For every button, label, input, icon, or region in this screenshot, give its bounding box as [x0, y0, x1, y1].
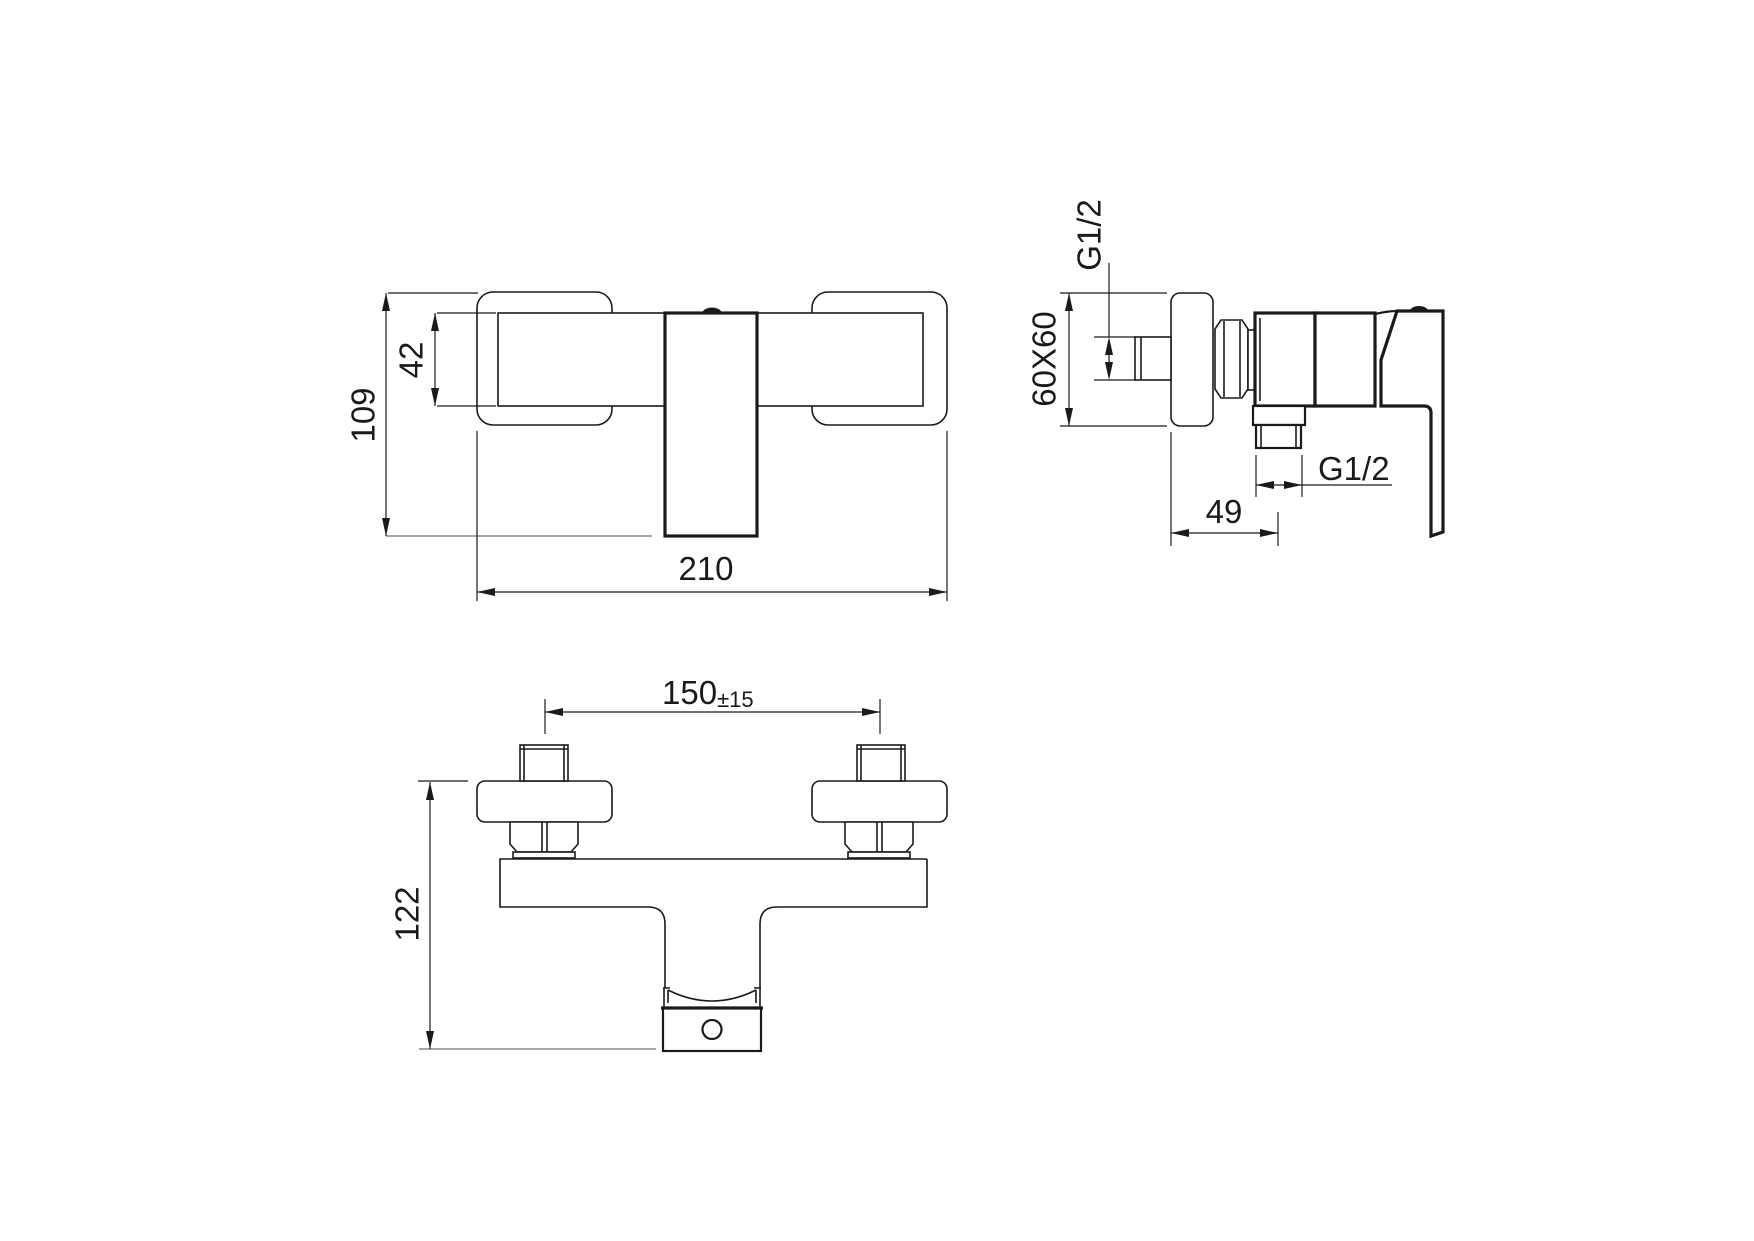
side-view: 60X60 G1/2 49 G1/2: [1026, 199, 1443, 546]
shower-mixer-drawing: 109 42 210: [0, 0, 1754, 1241]
arrowhead: [426, 782, 434, 800]
side-outlet-thread: [1256, 425, 1301, 448]
front-view: 109 42 210: [345, 292, 947, 601]
dim-label-150-value: 150: [662, 674, 717, 711]
bottom-left-nipple: [520, 745, 568, 781]
arrowhead: [477, 588, 495, 596]
grip-concave-arc: [668, 990, 756, 1001]
front-valve-body: [665, 313, 757, 536]
bottom-right-washer: [848, 852, 910, 858]
side-hex-nut: [1215, 320, 1248, 398]
dim-label-210: 210: [678, 550, 733, 587]
bottom-body-outline: [500, 859, 927, 988]
side-handle-lever: [1381, 311, 1443, 536]
arrowhead: [1105, 337, 1113, 355]
handle-neck-curve: [1375, 311, 1397, 314]
bottom-right-nipple: [857, 745, 905, 781]
dim-label-60x60: 60X60: [1026, 311, 1063, 406]
side-wall-flange: [1171, 293, 1213, 426]
arrowhead: [1260, 529, 1278, 537]
side-valve-body-rear: [1315, 313, 1375, 406]
dim-label-42: 42: [393, 342, 430, 379]
bottom-right-hex-nut: [845, 822, 913, 852]
bottom-left-washer: [513, 852, 575, 858]
dim-label-49: 49: [1206, 493, 1243, 530]
dim-label-g12-outlet: G1/2: [1318, 450, 1390, 487]
arrowhead: [431, 313, 439, 331]
arrowhead: [1171, 529, 1189, 537]
arrowhead: [431, 388, 439, 406]
grip-hole: [703, 1020, 722, 1039]
bottom-right-flange: [812, 781, 947, 822]
arrowhead: [862, 708, 880, 716]
bottom-view: 150±15 122: [389, 674, 947, 1051]
arrowhead: [545, 708, 563, 716]
arrowhead: [1065, 408, 1073, 426]
dim-label-150: 150±15: [662, 674, 754, 712]
dim-label-150-tolerance: ±15: [717, 687, 754, 712]
arrowhead: [382, 518, 390, 536]
arrowhead: [1105, 362, 1113, 380]
arrowhead: [382, 293, 390, 311]
side-outlet-collar: [1253, 406, 1305, 425]
arrowhead: [1284, 481, 1302, 489]
arrowhead: [929, 588, 947, 596]
bottom-left-flange: [477, 781, 612, 822]
arrowhead: [1065, 293, 1073, 311]
bottom-left-hex-nut: [510, 822, 578, 852]
side-top-button: [1410, 306, 1428, 311]
dim-label-122: 122: [389, 886, 426, 941]
dim-label-g12-wall: G1/2: [1071, 199, 1108, 271]
front-top-button: [702, 308, 722, 315]
arrowhead: [426, 1031, 434, 1049]
side-valve-body-front: [1255, 313, 1315, 406]
dim-label-109: 109: [345, 387, 382, 442]
grip-junction-lines: [663, 988, 761, 1008]
technical-drawing-page: 109 42 210: [0, 0, 1754, 1241]
arrowhead: [1256, 481, 1274, 489]
